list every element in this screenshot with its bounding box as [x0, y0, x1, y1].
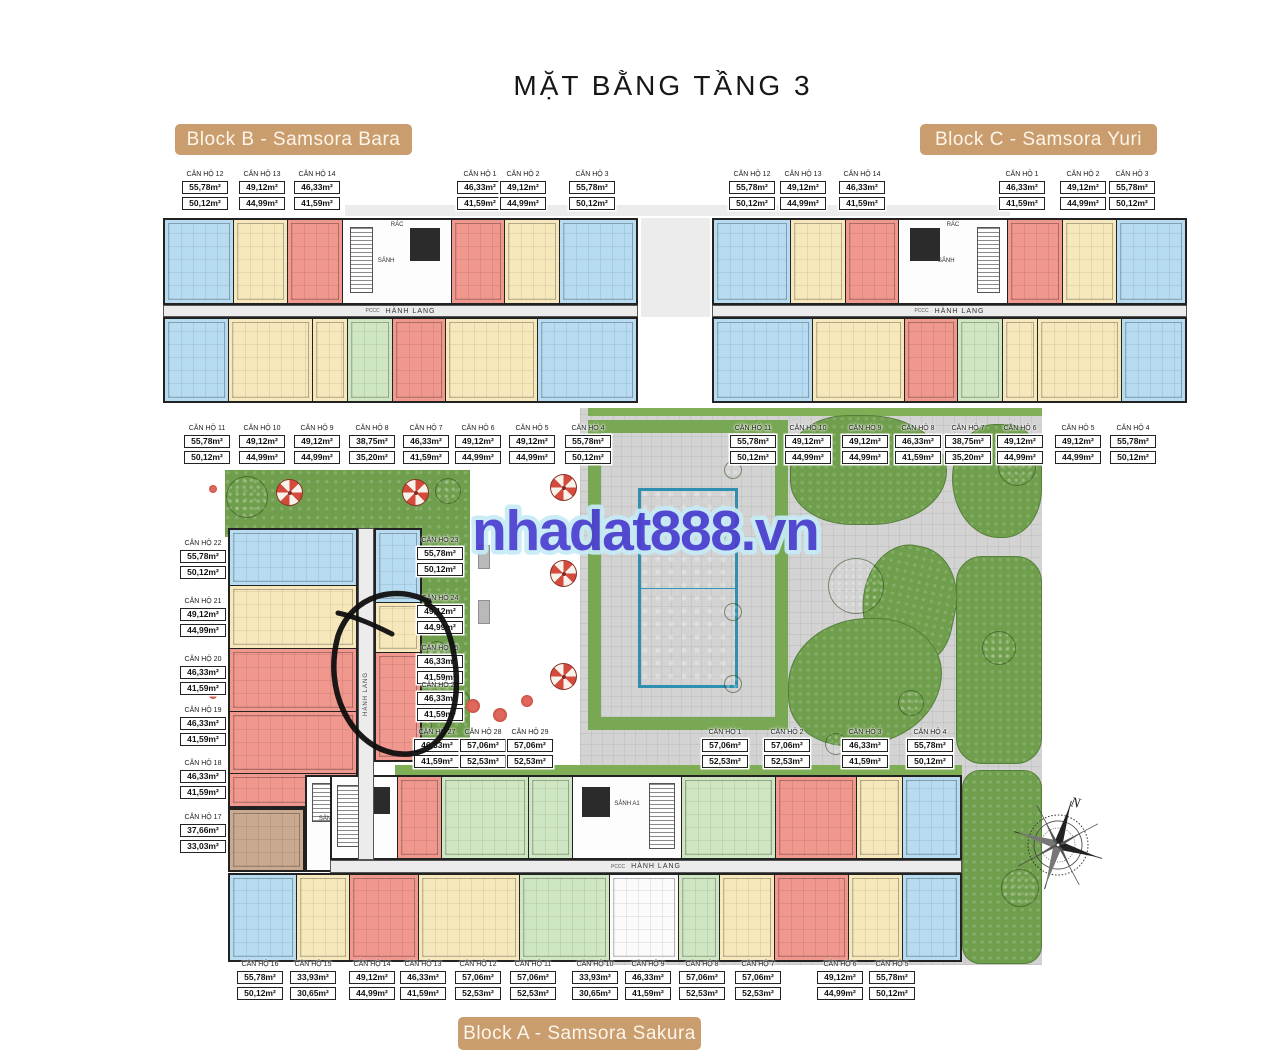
unit-area-net: 44,99m²	[842, 451, 888, 465]
unit-name: CĂN HỘ 6	[817, 961, 863, 968]
unit-name: CĂN HỘ 19	[180, 707, 226, 714]
corridor-label: HÀNH LANG	[363, 672, 369, 716]
apartment-unit	[790, 220, 845, 303]
unit-area-gross: 55,78m²	[180, 550, 226, 564]
unit-label: CĂN HỘ 949,12m²44,99m²	[842, 425, 888, 464]
unit-label: CĂN HỘ 355,78m²50,12m²	[569, 171, 615, 210]
unit-name: CĂN HỘ 7	[403, 425, 449, 432]
unit-area-net: 52,53m²	[764, 755, 810, 769]
unit-area-gross: 57,06m²	[455, 971, 501, 985]
unit-area-net: 44,99m²	[239, 197, 285, 211]
umbrella-icon	[550, 663, 577, 690]
unit-area-gross: 46,33m²	[180, 770, 226, 784]
tree-icon	[828, 558, 884, 614]
lobby-a1: SẢNH A1	[572, 777, 681, 858]
block-b-bottom-band	[163, 317, 638, 403]
unit-name: CĂN HỘ 8	[679, 961, 725, 968]
unit-area-net: 41,59m²	[403, 451, 449, 465]
apartment-unit	[392, 319, 445, 401]
unit-area-gross: 55,78m²	[729, 181, 775, 195]
apartment-unit	[165, 319, 228, 401]
unit-area-gross: 55,78m²	[569, 181, 615, 195]
unit-area-gross: 49,12m²	[180, 608, 226, 622]
unit-label: CĂN HỘ 949,12m²44,99m²	[294, 425, 340, 464]
floor-plan: MẶT BẰNG TẦNG 3 Block B - Samsora Bara B…	[0, 0, 1280, 1063]
unit-label: CĂN HỘ 355,78m²50,12m²	[1109, 171, 1155, 210]
unit-name: CĂN HỘ 26	[417, 682, 463, 689]
block-c-top-band: RÁC SẢNH	[712, 218, 1187, 305]
unit-area-net: 50,12m²	[417, 563, 463, 577]
unit-area-net: 50,12m²	[1110, 451, 1156, 465]
unit-label: CĂN HỘ 1533,93m²30,65m²	[290, 961, 336, 1000]
apartment-unit	[719, 875, 774, 960]
unit-area-net: 50,12m²	[907, 755, 953, 769]
unit-name: CĂN HỘ 15	[290, 961, 336, 968]
unit-label: CĂN HỘ 2255,78m²50,12m²	[180, 540, 226, 579]
tree-icon	[435, 478, 461, 504]
unit-area-gross: 49,12m²	[509, 435, 555, 449]
lobby-core: RÁC SẢNH	[898, 220, 1007, 303]
unit-area-net: 41,59m²	[895, 451, 941, 465]
unit-label: CĂN HỘ 157,06m²52,53m²	[702, 729, 748, 768]
unit-area-net: 41,59m²	[842, 755, 888, 769]
unit-area-gross: 55,78m²	[182, 181, 228, 195]
unit-name: CĂN HỘ 29	[507, 729, 553, 736]
apartment-unit	[775, 777, 856, 858]
unit-area-gross: 57,06m²	[679, 971, 725, 985]
compass-north-label: N	[1068, 795, 1082, 812]
unit-area-gross: 49,12m²	[1055, 435, 1101, 449]
unit-area-gross: 55,78m²	[184, 435, 230, 449]
unit-area-net: 44,99m²	[780, 197, 826, 211]
unit-area-gross: 55,78m²	[417, 547, 463, 561]
apartment-unit	[681, 777, 774, 858]
apartment-unit	[312, 319, 347, 401]
unit-name: CĂN HỘ 23	[417, 537, 463, 544]
unit-name: CĂN HỘ 7	[945, 425, 991, 432]
lobby-a1-label: SẢNH A1	[614, 801, 639, 807]
unit-label: CĂN HỘ 455,78m²50,12m²	[565, 425, 611, 464]
unit-name: CĂN HỘ 5	[509, 425, 555, 432]
unit-area-net: 41,59m²	[625, 987, 671, 1001]
apartment-unit	[230, 810, 303, 870]
unit-area-gross: 49,12m²	[1060, 181, 1106, 195]
unit-name: CĂN HỘ 25	[417, 645, 463, 652]
unit-name: CĂN HỘ 12	[729, 171, 775, 178]
unit-area-gross: 46,33m²	[414, 739, 460, 753]
pccc-label: PCCC	[611, 864, 625, 870]
unit-name: CĂN HỘ 7	[735, 961, 781, 968]
unit-area-net: 30,65m²	[572, 987, 618, 1001]
unit-label: CĂN HỘ 1033,93m²30,65m²	[572, 961, 618, 1000]
unit-label: CĂN HỘ 649,12m²44,99m²	[997, 425, 1043, 464]
unit-area-net: 41,59m²	[414, 755, 460, 769]
unit-label: CĂN HỘ 746,33m²41,59m²	[403, 425, 449, 464]
unit-label: CĂN HỘ 2449,12m²44,99m²	[417, 595, 463, 634]
unit-area-net: 52,53m²	[510, 987, 556, 1001]
unit-name: CĂN HỘ 13	[780, 171, 826, 178]
unit-name: CĂN HỘ 4	[1110, 425, 1156, 432]
unit-name: CĂN HỘ 8	[349, 425, 395, 432]
block-a-top-row: RÁC SẢNH A1	[330, 775, 962, 860]
unit-name: CĂN HỘ 14	[839, 171, 885, 178]
unit-name: CĂN HỘ 4	[565, 425, 611, 432]
unit-name: CĂN HỘ 8	[895, 425, 941, 432]
unit-label: CĂN HỘ 1255,78m²50,12m²	[182, 171, 228, 210]
unit-label: CĂN HỘ 1449,12m²44,99m²	[349, 961, 395, 1000]
unit-area-net: 50,12m²	[182, 197, 228, 211]
unit-area-gross: 49,12m²	[349, 971, 395, 985]
unit-name: CĂN HỘ 14	[294, 171, 340, 178]
unit-name: CĂN HỘ 5	[1055, 425, 1101, 432]
unit-label: CĂN HỘ 846,33m²41,59m²	[895, 425, 941, 464]
unit-label: CĂN HỘ 1049,12m²44,99m²	[785, 425, 831, 464]
umbrella-icon	[550, 474, 577, 501]
unit-area-net: 41,59m²	[839, 197, 885, 211]
unit-area-gross: 38,75m²	[945, 435, 991, 449]
flower-bed	[493, 708, 507, 722]
apartment-unit	[902, 777, 960, 858]
unit-area-net: 44,99m²	[1060, 197, 1106, 211]
unit-label: CĂN HỘ 2746,33m²41,59m²	[414, 729, 460, 768]
apartment-unit	[609, 875, 679, 960]
lobby-label: SẢNH	[938, 258, 955, 264]
unit-area-net: 50,12m²	[729, 197, 775, 211]
apartment-unit	[957, 319, 1002, 401]
unit-label: CĂN HỘ 2857,06m²52,53m²	[460, 729, 506, 768]
unit-label: CĂN HỘ 2546,33m²41,59m²	[417, 645, 463, 684]
block-b-top-band: RÁC SẢNH	[163, 218, 638, 305]
block-a-corridor: PCCC HÀNH LANG	[330, 860, 962, 873]
unit-area-gross: 46,33m²	[403, 435, 449, 449]
unit-area-gross: 37,66m²	[180, 824, 226, 838]
unit-label: CĂN HỘ 1846,33m²41,59m²	[180, 760, 226, 799]
umbrella-icon	[402, 479, 429, 506]
unit-area-gross: 55,78m²	[565, 435, 611, 449]
grass-strip	[588, 408, 1042, 416]
unit-area-net: 50,12m²	[869, 987, 915, 1001]
unit-area-gross: 49,12m²	[239, 181, 285, 195]
unit-area-gross: 57,06m²	[507, 739, 553, 753]
apartment-unit	[165, 220, 233, 303]
unit-name: CĂN HỘ 17	[180, 814, 226, 821]
block-a-badge: Block A - Samsora Sakura	[458, 1017, 701, 1050]
unit-area-net: 41,59m²	[400, 987, 446, 1001]
corridor-label: HÀNH LANG	[631, 863, 681, 870]
apartment-unit	[1116, 220, 1185, 303]
unit-area-net: 50,12m²	[565, 451, 611, 465]
unit-name: CĂN HỘ 3	[569, 171, 615, 178]
unit-label: CĂN HỘ 1946,33m²41,59m²	[180, 707, 226, 746]
unit-name: CĂN HỘ 5	[869, 961, 915, 968]
unit-name: CĂN HỘ 27	[414, 729, 460, 736]
unit-area-net: 33,03m²	[180, 840, 226, 854]
unit-name: CĂN HỘ 1	[702, 729, 748, 736]
unit-label: CĂN HỘ 2046,33m²41,59m²	[180, 656, 226, 695]
unit-area-gross: 46,33m²	[842, 739, 888, 753]
compass-icon: N	[1008, 793, 1108, 893]
unit-area-net: 44,99m²	[509, 451, 555, 465]
unit-area-net: 44,99m²	[455, 451, 501, 465]
unit-area-net: 41,59m²	[457, 197, 503, 211]
unit-area-gross: 49,12m²	[780, 181, 826, 195]
unit-area-net: 44,99m²	[294, 451, 340, 465]
apartment-unit	[1062, 220, 1117, 303]
flower-bed	[521, 695, 533, 707]
apartment-unit	[678, 875, 718, 960]
unit-area-gross: 46,33m²	[417, 655, 463, 669]
unit-area-net: 52,53m²	[735, 987, 781, 1001]
unit-name: CĂN HỘ 12	[182, 171, 228, 178]
unit-label: CĂN HỘ 1349,12m²44,99m²	[239, 171, 285, 210]
unit-area-gross: 46,33m²	[839, 181, 885, 195]
unit-area-gross: 49,12m²	[239, 435, 285, 449]
unit-name: CĂN HỘ 28	[460, 729, 506, 736]
unit-label: CĂN HỘ 1349,12m²44,99m²	[780, 171, 826, 210]
pccc-label: PCCC	[365, 308, 379, 314]
unit-label: CĂN HỘ 455,78m²50,12m²	[907, 729, 953, 768]
umbrella-icon	[550, 560, 577, 587]
bench	[478, 545, 490, 569]
driveway-strip	[641, 218, 710, 317]
driveway-strip	[345, 205, 1010, 216]
corridor-label: HÀNH LANG	[935, 308, 985, 315]
unit-name: CĂN HỘ 3	[842, 729, 888, 736]
apartment-unit	[848, 875, 902, 960]
block-a-wing-right-col	[374, 528, 422, 762]
page-title: MẶT BẰNG TẦNG 3	[0, 70, 1280, 102]
apartment-unit	[441, 777, 528, 858]
unit-area-net: 52,53m²	[460, 755, 506, 769]
unit-name: CĂN HỘ 12	[455, 961, 501, 968]
unit-area-gross: 55,78m²	[869, 971, 915, 985]
apartment-unit	[418, 875, 519, 960]
unit-label: CĂN HỘ 857,06m²52,53m²	[679, 961, 725, 1000]
unit-area-gross: 57,06m²	[460, 739, 506, 753]
unit-label: CĂN HỘ 249,12m²44,99m²	[1060, 171, 1106, 210]
unit-area-gross: 46,33m²	[294, 181, 340, 195]
unit-area-net: 50,12m²	[180, 566, 226, 580]
apartment-unit	[812, 319, 904, 401]
unit-area-net: 35,20m²	[945, 451, 991, 465]
unit-name: CĂN HỘ 4	[907, 729, 953, 736]
unit-label: CĂN HỘ 555,78m²50,12m²	[869, 961, 915, 1000]
unit-name: CĂN HỘ 1	[999, 171, 1045, 178]
apartment-unit	[233, 220, 288, 303]
apartment-unit	[445, 319, 537, 401]
block-a-brown-unit	[228, 808, 305, 872]
unit-area-net: 44,99m²	[817, 987, 863, 1001]
unit-label: CĂN HỘ 1737,66m²33,03m²	[180, 814, 226, 853]
apartment-unit	[287, 220, 342, 303]
unit-area-gross: 46,33m²	[999, 181, 1045, 195]
unit-label: CĂN HỘ 257,06m²52,53m²	[764, 729, 810, 768]
unit-label: CĂN HỘ 549,12m²44,99m²	[509, 425, 555, 464]
unit-name: CĂN HỘ 18	[180, 760, 226, 767]
unit-area-gross: 57,06m²	[735, 971, 781, 985]
unit-area-net: 41,59m²	[180, 733, 226, 747]
pccc-label: PCCC	[914, 308, 928, 314]
tree-icon	[226, 476, 268, 518]
unit-area-net: 41,59m²	[180, 786, 226, 800]
apartment-unit	[774, 875, 849, 960]
apartment-unit	[904, 319, 957, 401]
unit-area-gross: 49,12m²	[997, 435, 1043, 449]
unit-name: CĂN HỘ 24	[417, 595, 463, 602]
unit-area-gross: 49,12m²	[417, 605, 463, 619]
unit-area-gross: 55,78m²	[1109, 181, 1155, 195]
unit-name: CĂN HỘ 2	[1060, 171, 1106, 178]
unit-name: CĂN HỘ 3	[1109, 171, 1155, 178]
block-c-corridor: PCCC HÀNH LANG	[712, 305, 1187, 317]
unit-area-gross: 55,78m²	[237, 971, 283, 985]
apartment-unit	[397, 777, 441, 858]
unit-area-net: 44,99m²	[417, 621, 463, 635]
apartment-unit	[230, 585, 356, 647]
bush-icon	[724, 603, 742, 621]
apartment-unit	[228, 319, 312, 401]
unit-area-net: 44,99m²	[785, 451, 831, 465]
unit-label: CĂN HỘ 649,12m²44,99m²	[455, 425, 501, 464]
unit-area-gross: 46,33m²	[625, 971, 671, 985]
unit-area-gross: 33,93m²	[290, 971, 336, 985]
unit-name: CĂN HỘ 13	[400, 961, 446, 968]
block-a-wing-corridor: HÀNH LANG	[358, 528, 374, 860]
unit-area-gross: 46,33m²	[457, 181, 503, 195]
unit-name: CĂN HỘ 2	[764, 729, 810, 736]
unit-label: CĂN HỘ 2646,33m²41,59m²	[417, 682, 463, 721]
unit-name: CĂN HỘ 11	[730, 425, 776, 432]
unit-name: CĂN HỘ 11	[510, 961, 556, 968]
unit-area-net: 44,99m²	[349, 987, 395, 1001]
unit-area-net: 44,99m²	[1055, 451, 1101, 465]
unit-area-net: 35,20m²	[349, 451, 395, 465]
unit-label: CĂN HỘ 2957,06m²52,53m²	[507, 729, 553, 768]
tree-icon	[982, 631, 1016, 665]
unit-area-gross: 33,93m²	[572, 971, 618, 985]
unit-name: CĂN HỘ 11	[184, 425, 230, 432]
umbrella-icon	[276, 479, 303, 506]
apartment-unit	[296, 875, 349, 960]
apartment-unit	[1002, 319, 1037, 401]
apartment-unit	[714, 319, 812, 401]
apartment-unit	[1037, 319, 1121, 401]
unit-area-net: 50,12m²	[184, 451, 230, 465]
flower-bed	[209, 485, 217, 493]
unit-label: CĂN HỘ 146,33m²41,59m²	[457, 171, 503, 210]
unit-area-gross: 46,33m²	[180, 717, 226, 731]
unit-label: CĂN HỘ 946,33m²41,59m²	[625, 961, 671, 1000]
flower-bed	[466, 699, 480, 713]
unit-name: CĂN HỘ 10	[785, 425, 831, 432]
apartment-unit	[230, 711, 356, 773]
lobby-core: RÁC SẢNH	[342, 220, 451, 303]
unit-label: CĂN HỘ 1655,78m²50,12m²	[237, 961, 283, 1000]
unit-area-gross: 57,06m²	[510, 971, 556, 985]
bush-icon	[724, 531, 742, 549]
apartment-unit	[230, 648, 356, 711]
apartment-unit	[559, 220, 636, 303]
unit-area-net: 52,53m²	[679, 987, 725, 1001]
unit-area-gross: 49,12m²	[500, 181, 546, 195]
unit-name: CĂN HỘ 14	[349, 961, 395, 968]
unit-area-net: 44,99m²	[180, 624, 226, 638]
unit-name: CĂN HỘ 22	[180, 540, 226, 547]
apartment-unit	[349, 875, 419, 960]
unit-area-gross: 57,06m²	[764, 739, 810, 753]
unit-area-net: 41,59m²	[417, 708, 463, 722]
block-a-left-wing	[228, 528, 358, 808]
apartment-unit	[1007, 220, 1062, 303]
unit-label: CĂN HỘ 1155,78m²50,12m²	[730, 425, 776, 464]
block-b-corridor: PCCC HÀNH LANG	[163, 305, 638, 317]
unit-area-gross: 46,33m²	[400, 971, 446, 985]
apartment-unit	[519, 875, 608, 960]
unit-area-net: 52,53m²	[455, 987, 501, 1001]
unit-area-net: 41,59m²	[294, 197, 340, 211]
unit-name: CĂN HỘ 16	[237, 961, 283, 968]
unit-area-gross: 57,06m²	[702, 739, 748, 753]
block-a-bottom-row	[228, 873, 962, 962]
lobby-label: SẢNH	[378, 258, 395, 264]
unit-area-net: 44,99m²	[500, 197, 546, 211]
unit-area-gross: 49,12m²	[455, 435, 501, 449]
trash-room-label: RÁC	[947, 222, 960, 228]
unit-name: CĂN HỘ 2	[500, 171, 546, 178]
tree-icon	[898, 690, 924, 716]
unit-label: CĂN HỘ 1157,06m²52,53m²	[510, 961, 556, 1000]
unit-name: CĂN HỘ 9	[625, 961, 671, 968]
unit-label: CĂN HỘ 1255,78m²50,12m²	[729, 171, 775, 210]
unit-label: CĂN HỘ 1049,12m²44,99m²	[239, 425, 285, 464]
unit-name: CĂN HỘ 1	[457, 171, 503, 178]
apartment-unit	[451, 220, 504, 303]
apartment-unit	[376, 530, 420, 602]
unit-name: CĂN HỘ 9	[294, 425, 340, 432]
unit-name: CĂN HỘ 9	[842, 425, 888, 432]
unit-label: CĂN HỘ 2355,78m²50,12m²	[417, 537, 463, 576]
unit-name: CĂN HỘ 10	[572, 961, 618, 968]
unit-label: CĂN HỘ 455,78m²50,12m²	[1110, 425, 1156, 464]
unit-name: CĂN HỘ 6	[997, 425, 1043, 432]
apartment-unit	[230, 875, 296, 960]
unit-label: CĂN HỘ 1346,33m²41,59m²	[400, 961, 446, 1000]
unit-label: CĂN HỘ 1446,33m²41,59m²	[839, 171, 885, 210]
unit-area-gross: 55,78m²	[730, 435, 776, 449]
block-b-badge: Block B - Samsora Bara	[175, 124, 412, 155]
unit-area-net: 50,12m²	[1109, 197, 1155, 211]
apartment-unit	[845, 220, 898, 303]
unit-area-gross: 49,12m²	[294, 435, 340, 449]
corridor-label: HÀNH LANG	[386, 308, 436, 315]
unit-label: CĂN HỘ 346,33m²41,59m²	[842, 729, 888, 768]
apartment-unit	[714, 220, 790, 303]
apartment-unit	[902, 875, 960, 960]
unit-area-gross: 38,75m²	[349, 435, 395, 449]
unit-label: CĂN HỘ 838,75m²35,20m²	[349, 425, 395, 464]
unit-area-net: 44,99m²	[997, 451, 1043, 465]
unit-area-net: 41,59m²	[999, 197, 1045, 211]
unit-area-net: 52,53m²	[702, 755, 748, 769]
unit-area-net: 50,12m²	[569, 197, 615, 211]
unit-name: CĂN HỘ 20	[180, 656, 226, 663]
unit-label: CĂN HỘ 146,33m²41,59m²	[999, 171, 1045, 210]
bush-icon	[724, 675, 742, 693]
unit-label: CĂN HỘ 1446,33m²41,59m²	[294, 171, 340, 210]
unit-name: CĂN HỘ 6	[455, 425, 501, 432]
unit-area-net: 41,59m²	[180, 682, 226, 696]
block-c-bottom-band	[712, 317, 1187, 403]
